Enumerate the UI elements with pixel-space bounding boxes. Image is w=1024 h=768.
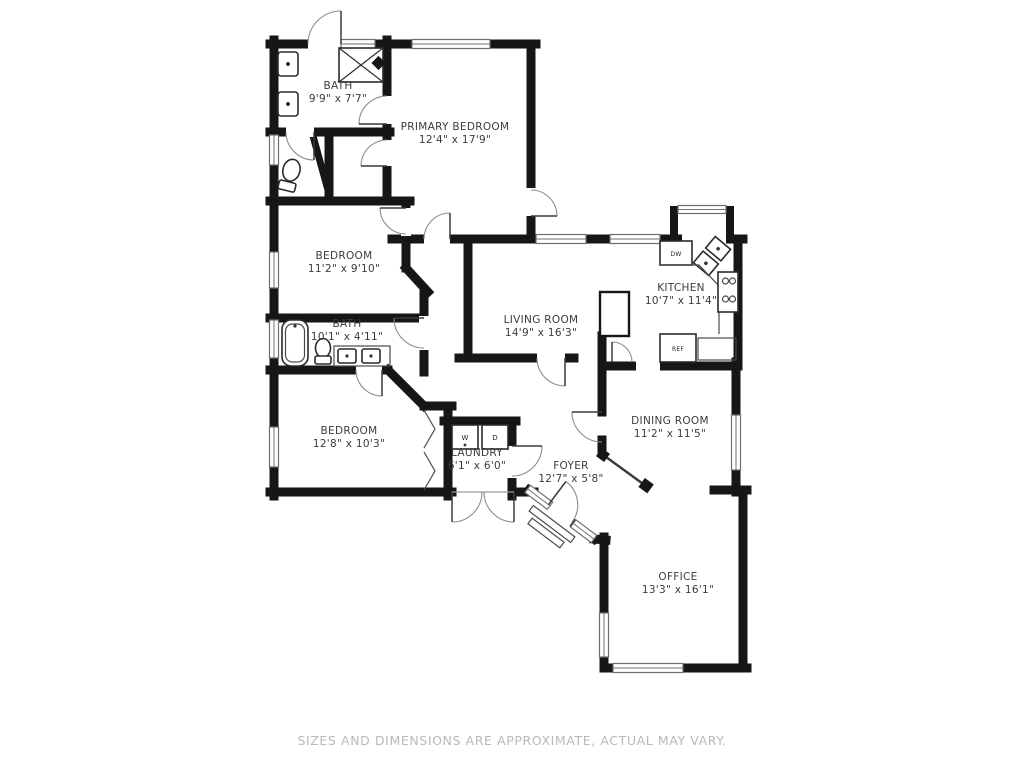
room-label-office: 13'3" x 16'1": [642, 584, 714, 596]
sink-icon: [278, 52, 298, 76]
refrigerator-label: REF: [672, 346, 684, 353]
toilet-icon: [278, 157, 303, 192]
room-label-primary-bedroom: PRIMARY BEDROOM: [401, 121, 510, 133]
window: [270, 427, 279, 467]
window: [412, 40, 490, 49]
room-label-bath-1: 9'9" x 7'7": [309, 93, 367, 105]
counter-edge: [698, 338, 736, 360]
room-label-dining-room: 11'2" x 11'5": [634, 428, 706, 440]
entry-sidelight: [571, 520, 597, 543]
vanity-sinks-icon: [334, 346, 390, 366]
room-label-laundry: LAUNDRY: [451, 447, 503, 459]
dryer-label: D: [492, 434, 497, 442]
room-label-bedroom-2: 11'2" x 9'10": [308, 263, 380, 275]
room-label-kitchen: KITCHEN: [657, 282, 705, 294]
dishwasher-label: DW: [671, 251, 682, 258]
floor-plan: W D DW REF BATH9'9" x 7'7"PRIMARY BEDROO…: [0, 0, 1024, 768]
entry-sidelight: [525, 485, 553, 509]
appliance-labels: W D DW REF: [462, 251, 685, 442]
stove-icon: [718, 272, 738, 312]
bifold-doors-icon: [424, 410, 435, 490]
room-label-kitchen: 10'7" x 11'4": [645, 295, 717, 307]
window: [732, 415, 741, 470]
bathtub-icon: [282, 320, 308, 366]
shower-icon: [339, 48, 386, 82]
window: [270, 320, 279, 358]
window: [536, 235, 586, 244]
room-label-bath-1: BATH: [323, 80, 352, 92]
room-labels: BATH9'9" x 7'7"PRIMARY BEDROOM12'4" x 17…: [308, 80, 717, 596]
room-label-primary-bedroom: 12'4" x 17'9": [419, 134, 491, 146]
room-label-office: OFFICE: [658, 571, 697, 583]
window: [600, 613, 609, 657]
window: [270, 252, 279, 288]
room-label-living-room: 14'9" x 16'3": [505, 327, 577, 339]
room-label-dining-room: DINING ROOM: [631, 415, 709, 427]
kitchen-bay-window: [678, 206, 726, 214]
floor-plan-page: W D DW REF BATH9'9" x 7'7"PRIMARY BEDROO…: [0, 0, 1024, 768]
room-label-bedroom-3: BEDROOM: [321, 425, 378, 437]
room-label-foyer: 12'7" x 5'8": [538, 473, 603, 485]
room-label-bath-2: BATH: [332, 318, 361, 330]
room-label-living-room: LIVING ROOM: [504, 314, 579, 326]
room-label-foyer: FOYER: [553, 460, 589, 472]
bay-window-post: [670, 206, 678, 239]
disclaimer-text: SIZES AND DIMENSIONS ARE APPROXIMATE, AC…: [0, 733, 1024, 748]
foyer-dining-half-wall: [606, 457, 646, 486]
window: [610, 235, 660, 244]
window: [270, 135, 279, 165]
chimney-box: [600, 292, 629, 336]
room-label-bath-2: 10'1" x 4'11": [311, 331, 383, 343]
window: [613, 664, 683, 673]
window: [341, 40, 375, 49]
room-label-bedroom-3: 12'8" x 10'3": [313, 438, 385, 450]
sink-icon: [278, 92, 298, 116]
bay-window-post: [726, 206, 734, 239]
door-arc: [612, 342, 632, 362]
room-label-laundry: 6'1" x 6'0": [448, 460, 506, 472]
washer-label: W: [462, 434, 469, 442]
room-label-bedroom-2: BEDROOM: [316, 250, 373, 262]
